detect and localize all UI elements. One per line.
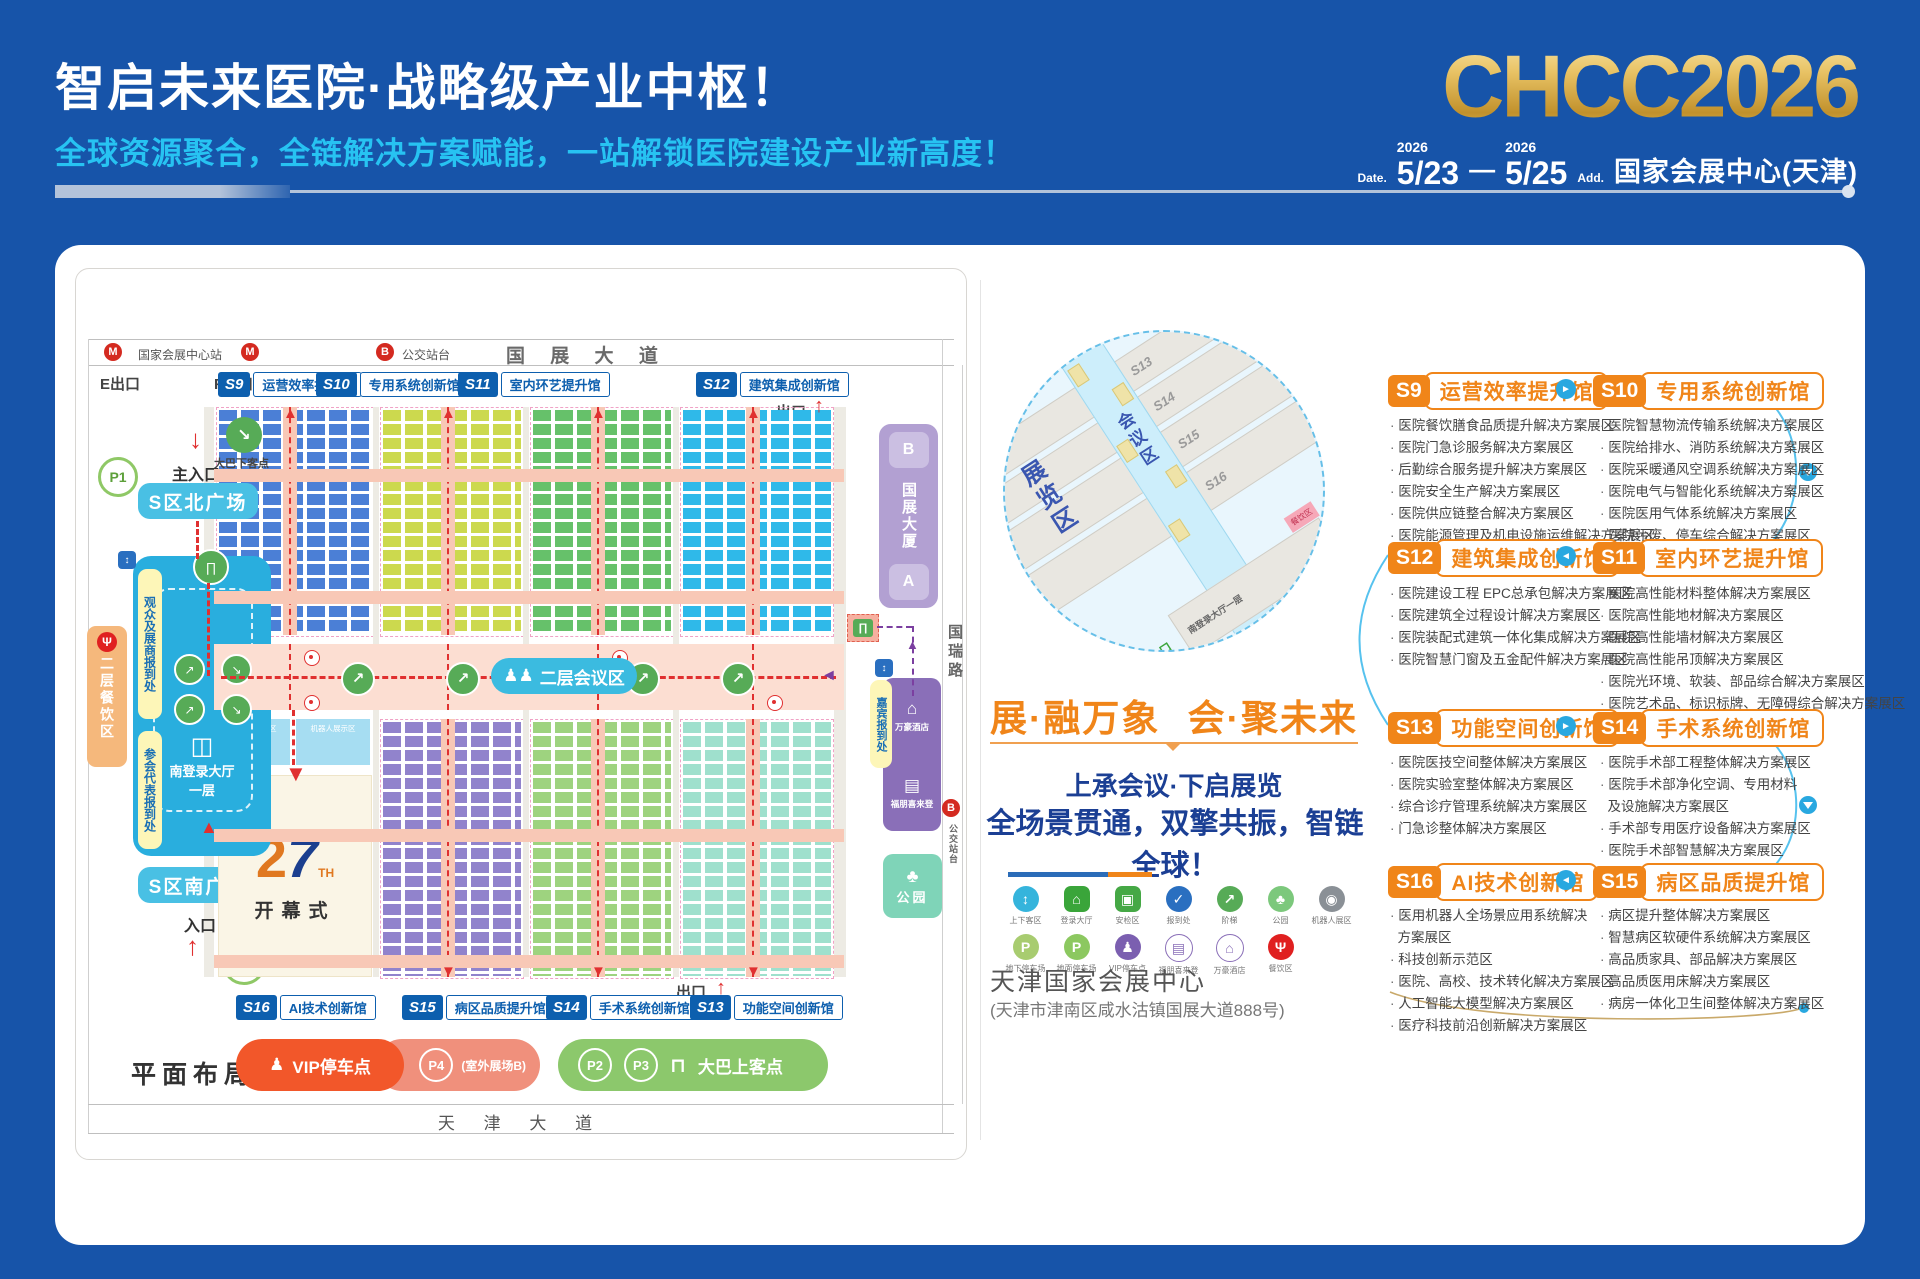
hall-aisle: [591, 719, 605, 977]
hall-title: 病区品质提升馆: [1640, 863, 1824, 901]
amenity-icon: [304, 695, 320, 711]
stairs-icon: ↗: [174, 654, 205, 685]
legend-security: ▣安检区: [1102, 886, 1153, 926]
robot-zone: 机器人展示区: [296, 719, 370, 765]
hotel-icon: ▤: [904, 776, 920, 796]
legend-park: ♣公园: [1255, 886, 1306, 926]
flow-arrow-down: ▼: [591, 963, 606, 980]
road-line: [942, 339, 943, 1134]
escalator-chip-icon: ↕: [118, 551, 136, 569]
isometric-map: S12 S11 S10 S9 展览区 S13 S14 S15 S16 会议区 南…: [1003, 330, 1325, 652]
bus-stop-icon: B: [376, 343, 394, 361]
hall-id: S12: [696, 372, 737, 397]
hall-id: S15: [402, 995, 443, 1020]
dining-block: Ψ 二层餐饮区: [87, 626, 127, 767]
venue-address: (天津市津南区咸水沽镇国展大道888号): [990, 996, 1285, 1021]
hall-list-item: 医院给排水、消防系统解决方案展区: [1600, 437, 1824, 459]
pair-arrow-icon: ►: [1556, 716, 1576, 736]
hall-number: S15: [1593, 866, 1646, 898]
hall-aisle: [441, 719, 455, 977]
hall-id: S16: [236, 995, 277, 1020]
hall-list-item: 病房一体化卫生间整体解决方案展区: [1600, 993, 1824, 1015]
tower-b-chip: B: [889, 432, 929, 468]
date-label: Date.: [1357, 171, 1386, 189]
legend-dropoff: ↕上下客区: [1000, 886, 1051, 926]
hall-tag-s13[interactable]: S13 功能空间创新馆: [690, 995, 843, 1020]
hall-list-item: 医院实验室整体解决方案展区: [1390, 774, 1587, 796]
hall-card-s15[interactable]: S15 病区品质提升馆: [1593, 863, 1824, 901]
stairs-icon: ↗: [1217, 886, 1243, 912]
vip-route-arrow-icon: ◄: [821, 667, 837, 685]
hall-list-item: 医院手术部净化空调、专用材料 及设施解决方案展区: [1600, 774, 1811, 818]
hall-id: S9: [218, 372, 250, 397]
building-icon: ◫: [133, 732, 271, 761]
metro-icon: M: [241, 343, 259, 361]
hall-items-s11: 医院高性能材料整体解决方案展区医院高性能地材解决方案展区医院高性能墙材解决方案展…: [1600, 583, 1905, 715]
hall-name: 手术系统创新馆: [590, 995, 699, 1020]
escalator-icon: ↗: [341, 662, 375, 696]
flow-arrow-up: ▲: [746, 405, 761, 422]
bus-boarding-pill[interactable]: P2 P3 ⊓ 大巴上客点: [558, 1039, 828, 1091]
hall-list-item: 门急诊整体解决方案展区: [1390, 818, 1587, 840]
hall-id: S14: [546, 995, 587, 1020]
vip-parking-label: VIP停车点: [292, 1053, 370, 1078]
people-icon: ♟♟: [503, 666, 533, 686]
hall-aisle: [746, 719, 760, 977]
metro-station-label: 国家会展中心站: [138, 346, 222, 363]
page-title: 智启未来医院·战略级产业中枢！: [55, 48, 802, 120]
aisle-band: [214, 829, 844, 842]
amenity-icon: [304, 650, 320, 666]
flow-arrow-up: ▲: [283, 405, 298, 422]
hall-number: S9: [1388, 375, 1430, 407]
south-hall-block-label: ◫ 南登录大厅 一层: [133, 732, 271, 799]
hall-list-item: 医院高性能吊顶解决方案展区: [1600, 649, 1905, 671]
tower-a-chip: A: [889, 564, 929, 600]
conference-area-pill: ♟♟ 二层会议区: [491, 658, 637, 694]
pair-arrow-icon: ◄: [1556, 546, 1576, 566]
escalator-chip-icon: ↕: [875, 659, 893, 677]
entry-route: [207, 583, 210, 676]
divider-thick: [55, 185, 290, 198]
bus-stop-right-label: 公交站台: [947, 824, 960, 864]
flow-arrow-down: ▼: [441, 963, 456, 980]
hall-name: 功能空间创新馆: [734, 995, 843, 1020]
hall-list-item: 医院手术部智慧解决方案展区: [1600, 840, 1811, 862]
iso-entrance-label: 主入口: [1136, 638, 1175, 652]
venue-overview-circle: S12 S11 S10 S9 展览区 S13 S14 S15 S16 会议区 南…: [1003, 330, 1325, 652]
hall-items-s10: 医院智慧物流传输系统解决方案展区医院给排水、消防系统解决方案展区医院采暖通风空调…: [1600, 415, 1824, 547]
p1-parking-icon[interactable]: P1: [98, 457, 138, 497]
hall-title: 手术系统创新馆: [1640, 709, 1824, 747]
legend-marriott: ⌂万豪酒店: [1204, 934, 1255, 976]
hall-list-item: 智慧病区软硬件系统解决方案展区: [1600, 927, 1824, 949]
hall-list-item: 医院光环境、软装、部品综合解决方案展区: [1600, 671, 1905, 693]
pair-arrow-icon: ◄: [1556, 870, 1576, 890]
tower-block: B 国展大厦 A: [879, 424, 938, 608]
hotel-icon: ⌂: [907, 699, 917, 719]
hall-name: 建筑集成创新馆: [740, 372, 849, 397]
legend-registration: ✓报到处: [1153, 886, 1204, 926]
tagline-1: 上承会议·下启展览: [990, 766, 1358, 803]
slogan-right: 会·聚未来: [1188, 688, 1358, 742]
route-to-opening: [292, 710, 295, 765]
hall-items-s15: 病区提升整体解决方案展区智慧病区软硬件系统解决方案展区高品质家具、部品解决方案展…: [1600, 905, 1824, 1015]
hall-title: 建筑集成创新馆: [1435, 539, 1619, 577]
visitor-registration-label: 观众及展商报到处: [138, 569, 162, 719]
metro-icon: M: [104, 343, 122, 361]
fourpoints-hotel: ▤ 福朋喜来登: [891, 776, 934, 810]
hall-card-s10[interactable]: S10 专用系统创新馆: [1593, 372, 1824, 410]
exit-bottom-arrow-icon: ↑: [716, 977, 726, 1000]
vip-parking-pill[interactable]: ♟ VIP停车点: [236, 1039, 404, 1091]
registration-icon: ✓: [1166, 886, 1192, 912]
hall-tag-s14[interactable]: S14 手术系统创新馆: [546, 995, 699, 1020]
dining-label: 二层餐饮区: [97, 656, 117, 741]
exit-top-arrow-icon: ↑: [814, 395, 824, 418]
entry-route: [196, 521, 199, 559]
hall-id: S10: [316, 372, 357, 397]
main-entrance-arrow-icon: ↓: [189, 424, 202, 455]
hall-list-item: 人工智能大模型解决方案展区: [1390, 993, 1614, 1015]
vip-route-arrow-icon: ▲: [906, 637, 919, 652]
hall-list-item: 科技创新示范区: [1390, 949, 1614, 971]
hall-card-s13[interactable]: S13 功能空间创新馆: [1388, 709, 1619, 747]
hall-card-s14[interactable]: S14 手术系统创新馆: [1593, 709, 1824, 747]
escalator-icon: ↗: [446, 662, 480, 696]
hall-card-s12[interactable]: S12 建筑集成创新馆: [1388, 539, 1619, 577]
date-dash: —: [1469, 154, 1495, 189]
hall-name: 专用系统创新馆: [360, 372, 469, 397]
hall-list-item: 医院电气与智能化系统解决方案展区: [1600, 481, 1824, 503]
conference-area-label: 二层会议区: [540, 664, 625, 689]
park-icon: ♣: [1268, 886, 1294, 912]
north-plaza-label: S区北广场: [138, 483, 258, 519]
flow-arrow-up: ▲: [591, 405, 606, 422]
hall-list-item: 医院医用气体系统解决方案展区: [1600, 503, 1824, 525]
hall-list-item: 医院高性能地材解决方案展区: [1600, 605, 1905, 627]
tower-label: 国展大厦: [898, 482, 919, 550]
park-label: 公园: [896, 887, 928, 906]
hall-list-item: 医院高性能材料整体解决方案展区: [1600, 583, 1905, 605]
escalator-icon: ↗: [721, 662, 755, 696]
p2-icon: P2: [578, 1048, 612, 1082]
road-line: [88, 1104, 954, 1105]
exit-e-label: E出口: [100, 373, 140, 394]
marriott-hotel: ⌂ 万豪酒店: [895, 699, 929, 733]
hall-number: S11: [1593, 542, 1645, 574]
guest-gate: ∏: [847, 614, 879, 642]
hall-list-item: 医疗科技前沿创新解决方案展区: [1390, 1015, 1614, 1037]
park-block: ♣ 公园: [883, 854, 942, 918]
guest-registration-label: 嘉宾报到处: [870, 680, 892, 768]
security-icon: ▣: [1115, 886, 1141, 912]
hall-list-item: 高品质医用床解决方案展区: [1600, 971, 1824, 993]
opening-arrow-icon: ▼: [285, 761, 307, 787]
hall-number: S16: [1388, 866, 1441, 898]
surface-parking-icon: P: [1064, 934, 1090, 960]
amenity-icon: [767, 695, 783, 711]
login-hall-icon: ⌂: [1064, 886, 1090, 912]
hall-list-item: 医院、高校、技术转化解决方案展区: [1390, 971, 1614, 993]
bus-boarding-label: 大巴上客点: [698, 1053, 783, 1078]
addr-label: Add.: [1577, 171, 1604, 189]
fourpoints-icon: ▤: [1165, 934, 1193, 962]
hall-list-item: 综合诊疗管理系统解决方案展区: [1390, 796, 1587, 818]
legend-bar-orange: [1108, 872, 1152, 877]
bus-stop-icon: B: [942, 799, 960, 817]
hall-list-item: 医用机器人全场景应用系统解决 方案展区: [1390, 905, 1614, 949]
legend-stairs: ↗阶梯: [1204, 886, 1255, 926]
venue-name: 天津国家会展中心: [990, 962, 1206, 998]
hall-name: 病区品质提升馆: [446, 995, 555, 1020]
hall-id: S11: [458, 372, 498, 397]
bus-icon: ⊓: [670, 1053, 686, 1078]
hall-number: S10: [1593, 375, 1646, 407]
bus-stop-label: 公交站台: [402, 346, 450, 363]
tree-icon: ♣: [907, 866, 919, 887]
route-cross: [289, 644, 291, 710]
hall-tag-s12[interactable]: S12 建筑集成创新馆: [696, 372, 849, 397]
legend-login-hall: ⌂登录大厅: [1051, 886, 1102, 926]
dropoff-icon: ↕: [1013, 886, 1039, 912]
hall-title: 运营效率提升馆: [1424, 372, 1608, 410]
slogan-row: 展·融万象 会·聚未来: [990, 688, 1358, 742]
hall-title: 功能空间创新馆: [1435, 709, 1619, 747]
dining-icon: Ψ: [1268, 934, 1294, 960]
hall-list-item: 医院手术部工程整体解决方案展区: [1600, 752, 1811, 774]
p3-icon: P3: [624, 1048, 658, 1082]
hall-items-s13: 医院医技空间整体解决方案展区医院实验室整体解决方案展区综合诊疗管理系统解决方案展…: [1390, 752, 1587, 840]
road-right-label: 国瑞路: [944, 624, 965, 681]
legend-dining: Ψ餐饮区: [1255, 934, 1306, 976]
chcc-logo: CHCC2026: [1442, 37, 1858, 138]
aisle-band: [214, 591, 844, 604]
gate-icon: ∏: [853, 619, 873, 637]
stairs-icon: ↘: [221, 654, 252, 685]
road-line: [962, 365, 963, 1104]
aisle-band: [214, 469, 844, 482]
hall-items-s14: 医院手术部工程整体解决方案展区医院手术部净化空调、专用材料 及设施解决方案展区手…: [1600, 752, 1811, 862]
entrance-arrow-icon: ↑: [186, 931, 199, 962]
event-dates: Date. 2026 5/23 — 2026 5/25 Add. 国家会展中心(…: [1357, 140, 1858, 189]
page-subtitle: 全球资源聚合，全链解决方案赋能，一站解锁医院建设产业新高度！: [55, 128, 1015, 173]
hall-number: S13: [1388, 712, 1441, 744]
poster-root: { "header": { "title": "智启未来医院·战略级产业中枢！"…: [0, 0, 1920, 1279]
hall-items-s16: 医用机器人全场景应用系统解决 方案展区科技创新示范区医院、高校、技术转化解决方案…: [1390, 905, 1614, 1037]
hall-tag-s10[interactable]: S10 专用系统创新馆: [316, 372, 469, 397]
date-to: 5/25: [1505, 157, 1567, 189]
main-entrance-label: 主入口: [172, 461, 220, 485]
year-from: 2026: [1397, 140, 1459, 154]
year-to: 2026: [1505, 140, 1567, 154]
hall-number: S12: [1388, 542, 1441, 574]
p4-note: (室外展场B): [461, 1057, 526, 1074]
bus-drop-icon: ↘: [226, 417, 262, 453]
flow-arrow-down: ▼: [746, 963, 761, 980]
hall-list-item: 手术部专用医疗设备解决方案展区: [1600, 818, 1811, 840]
vip-parking-icon: ♟: [1115, 934, 1141, 960]
hall-list-item: 高品质家具、部品解决方案展区: [1600, 949, 1824, 971]
hall-tag-s16[interactable]: S16 AI技术创新馆: [236, 995, 376, 1020]
panel-separator: [980, 280, 981, 1140]
hall-number: S14: [1593, 712, 1646, 744]
divider-line: [290, 190, 1846, 193]
road-line: [88, 339, 954, 340]
road-top-label: 国 展 大 道: [506, 341, 668, 368]
hall-name: 室内环艺提升馆: [501, 372, 610, 397]
road-bottom-label: 天 津 大 道: [76, 1109, 966, 1134]
slogan-notch: [1164, 742, 1182, 751]
vip-person-icon: ♟: [269, 1055, 284, 1075]
hall-list-item: 医院医技空间整体解决方案展区: [1390, 752, 1587, 774]
marriott-icon: ⌂: [1216, 934, 1244, 962]
opening-ceremony-label: 开幕式: [254, 896, 335, 923]
hall-tag-s11[interactable]: S11 室内环艺提升馆: [458, 372, 610, 397]
hall-title: 专用系统创新馆: [1640, 372, 1824, 410]
underground-parking-icon: P: [1013, 934, 1039, 960]
hall-name: AI技术创新馆: [280, 995, 376, 1020]
hall-card-s11[interactable]: S11 室内环艺提升馆: [1593, 539, 1823, 577]
hall-list-item: 病区提升整体解决方案展区: [1600, 905, 1824, 927]
hall-list-item: 医院采暖通风空调系统解决方案展区: [1600, 459, 1824, 481]
hall-tag-s15[interactable]: S15 病区品质提升馆: [402, 995, 555, 1020]
vip-route: [877, 626, 912, 628]
hall-title: 室内环艺提升馆: [1639, 539, 1823, 577]
pair-arrow-icon: ►: [1556, 379, 1576, 399]
stairs-icon: ↘: [221, 694, 252, 725]
hall-list-item: 医院高性能墙材解决方案展区: [1600, 627, 1905, 649]
stairs-icon: ↗: [174, 694, 205, 725]
hall-list-item: 医院智慧物流传输系统解决方案展区: [1600, 415, 1824, 437]
flow-arrow-up: ▲: [441, 405, 456, 422]
divider-dot: [1842, 185, 1855, 198]
p4-icon: P4: [419, 1048, 453, 1082]
floor-plan: M 国家会展中心站 M B 公交站台 国 展 大 道 E出口 F出口 国瑞路 B…: [75, 268, 967, 1160]
slogan-left: 展·融万象: [990, 688, 1160, 742]
venue-name-header: 国家会展中心(天津): [1614, 150, 1858, 189]
date-from: 5/23: [1397, 157, 1459, 189]
dining-icon: Ψ: [97, 632, 117, 652]
legend-bar-blue: [1008, 872, 1108, 877]
